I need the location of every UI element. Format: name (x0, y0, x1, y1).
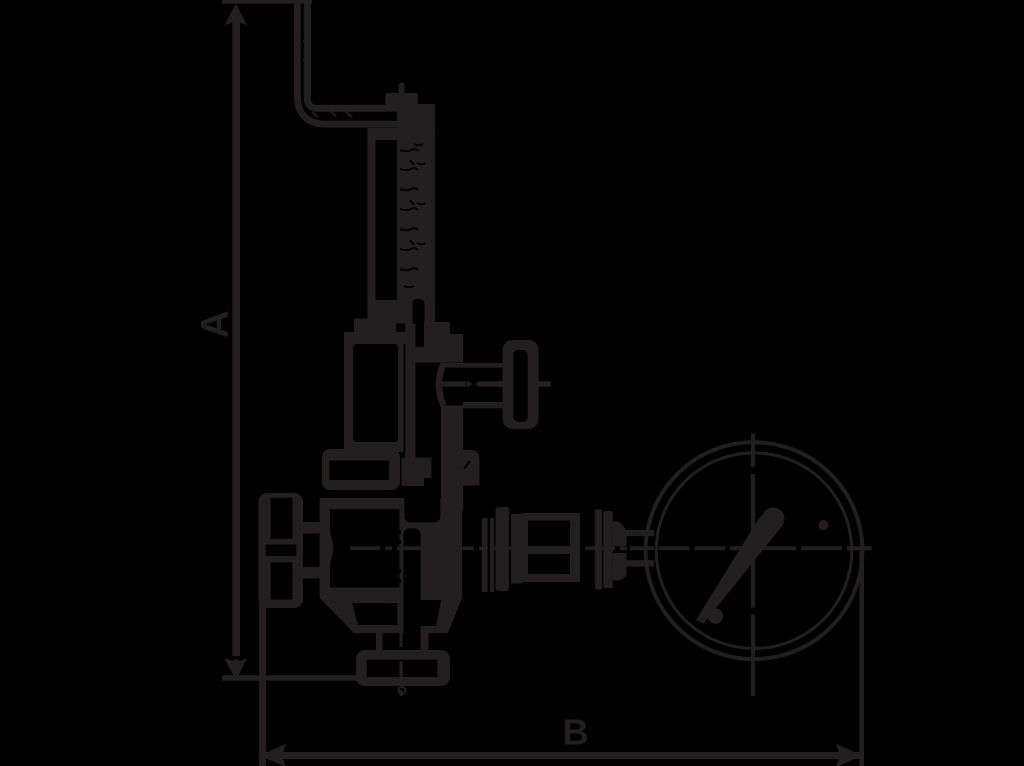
svg-text:A: A (194, 310, 237, 338)
svg-text:B: B (563, 712, 589, 753)
